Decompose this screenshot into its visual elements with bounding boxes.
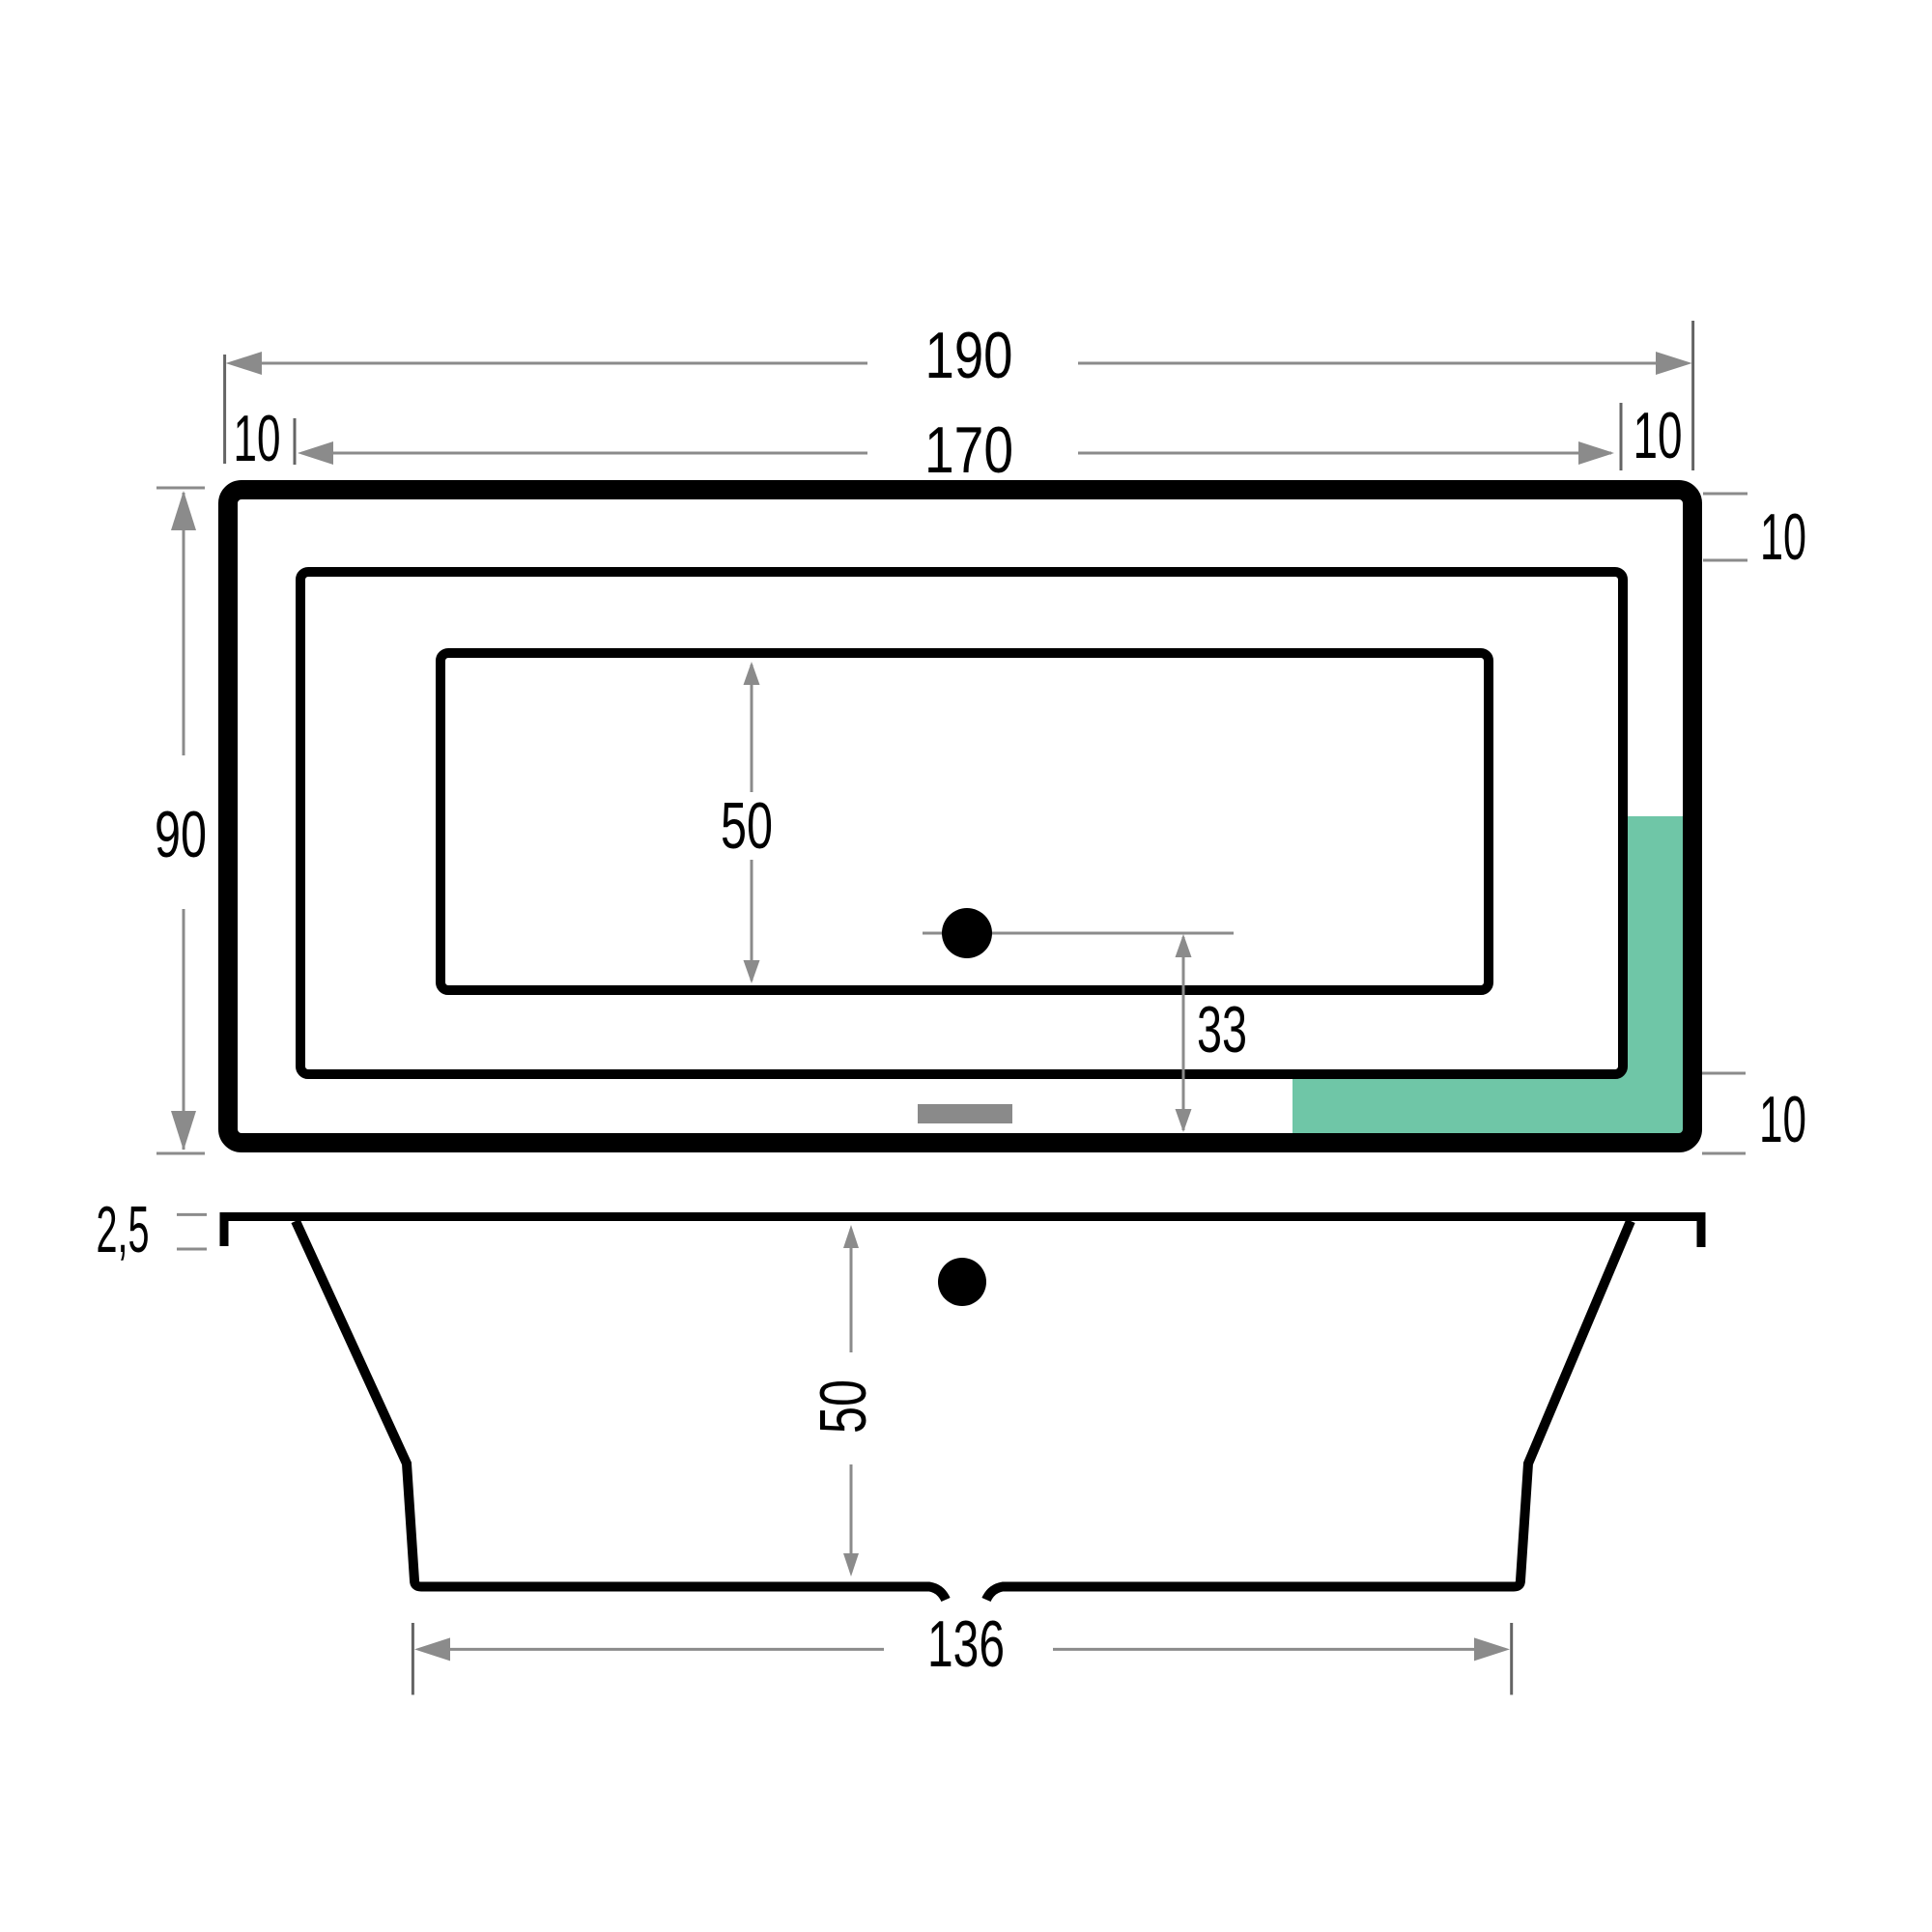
svg-text:10: 10 xyxy=(234,402,281,475)
svg-text:10: 10 xyxy=(1759,1083,1806,1156)
svg-text:90: 90 xyxy=(155,798,207,871)
svg-text:170: 170 xyxy=(924,413,1013,487)
svg-text:190: 190 xyxy=(925,319,1013,392)
svg-text:50: 50 xyxy=(807,1379,880,1434)
svg-text:50: 50 xyxy=(721,789,773,863)
svg-text:2,5: 2,5 xyxy=(97,1193,150,1266)
svg-text:136: 136 xyxy=(927,1607,1005,1681)
svg-text:10: 10 xyxy=(1634,399,1683,472)
svg-text:33: 33 xyxy=(1197,993,1247,1066)
svg-text:10: 10 xyxy=(1760,500,1806,574)
